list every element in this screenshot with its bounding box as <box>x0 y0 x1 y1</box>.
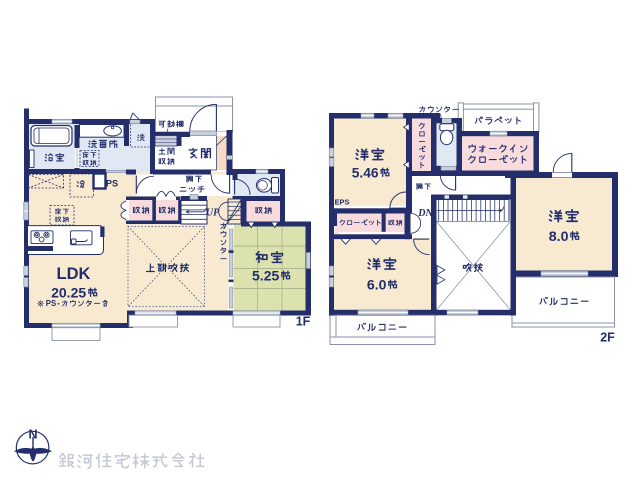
svg-text:PS: PS <box>106 179 118 189</box>
svg-text:8.0: 8.0 <box>549 229 569 245</box>
svg-text:DN: DN <box>417 208 433 219</box>
svg-text:UP: UP <box>206 208 220 219</box>
svg-text:PS: PS <box>46 299 56 308</box>
svg-text:5.46: 5.46 <box>352 165 379 180</box>
svg-text:6.0: 6.0 <box>367 277 387 293</box>
svg-text:20.25: 20.25 <box>51 285 86 301</box>
svg-text:5.25: 5.25 <box>252 268 279 284</box>
svg-text:LDK: LDK <box>57 265 91 283</box>
svg-text:EPS: EPS <box>335 198 350 207</box>
svg-text:2F: 2F <box>600 331 615 345</box>
svg-text:1F: 1F <box>296 315 311 329</box>
svg-text:N: N <box>28 428 37 442</box>
